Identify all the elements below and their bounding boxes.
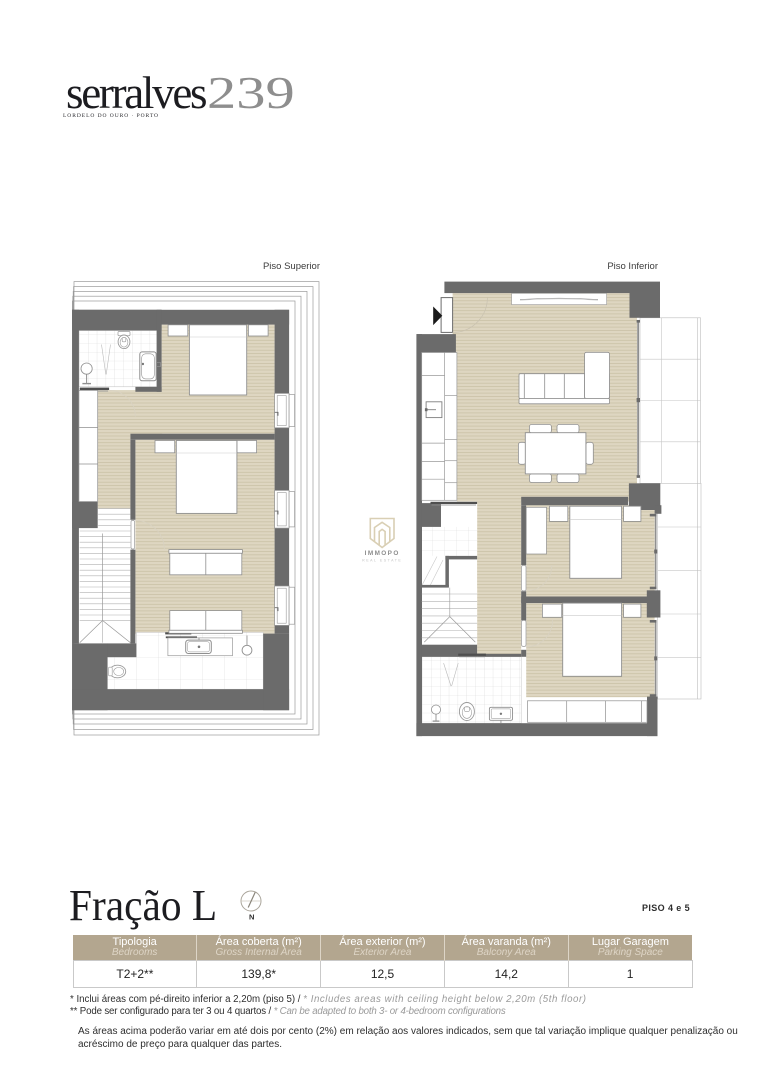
svg-text:IMMOPO: IMMOPO [365,550,400,557]
svg-text:REAL ESTATE: REAL ESTATE [362,559,402,563]
svg-text:N: N [249,913,254,922]
